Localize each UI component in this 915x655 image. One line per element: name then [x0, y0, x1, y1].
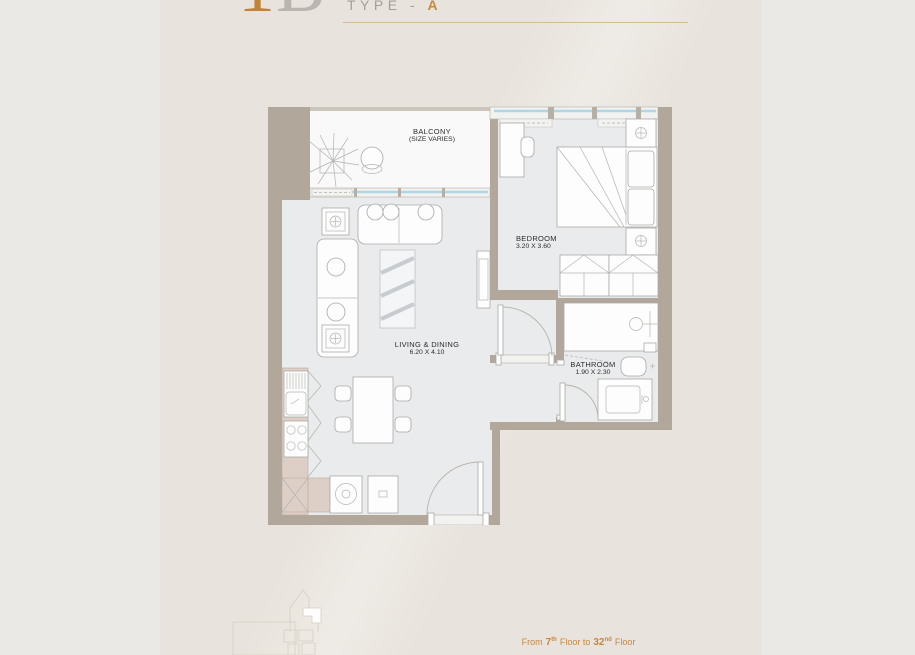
- plan-code-letter: B: [276, 0, 326, 28]
- balcony-slider: [310, 188, 490, 197]
- balcony-label: BALCONY (SIZE VARIES): [392, 127, 472, 145]
- bed-icon: [557, 147, 657, 227]
- rug-icon: [380, 250, 415, 328]
- lamp-table-icon: [322, 325, 349, 352]
- brochure-page: { "page": { "background": "#e8e3dc", "ma…: [0, 0, 915, 655]
- bathroom-label: BATHROOM 1.90 X 2.30: [553, 360, 633, 378]
- kitchen-sink-icon: [284, 371, 308, 417]
- kitchen-cabinet: [308, 478, 330, 512]
- hob-icon: [284, 421, 308, 457]
- shaft-icon: [282, 478, 308, 512]
- washing-machine-icon: [330, 476, 362, 513]
- highlighted-unit: [303, 608, 321, 623]
- lamp-table-icon: [322, 208, 349, 235]
- page-title: 1B: [238, 0, 326, 24]
- living-dining-label: LIVING & DINING 6.20 X 4.10: [377, 340, 477, 358]
- tv-unit-icon: [477, 251, 490, 308]
- plan-code-number: 1: [238, 0, 276, 28]
- sofa-icon: [358, 204, 442, 244]
- key-plan: [225, 570, 355, 655]
- wardrobe-icon: [560, 255, 658, 296]
- vanity-icon: [598, 379, 652, 420]
- water-heater-icon: [368, 476, 398, 513]
- nightstand-lamp-icon: [626, 228, 656, 255]
- title-divider: [343, 22, 688, 23]
- nightstand-lamp-icon: [626, 119, 656, 147]
- bedroom-label: BEDROOM 3.20 X 3.60: [516, 234, 557, 252]
- floor-range-note: From7thFloor to32ndFloor: [480, 637, 680, 648]
- floor-plan: [268, 105, 672, 525]
- type-label: TYPE - A: [347, 0, 442, 13]
